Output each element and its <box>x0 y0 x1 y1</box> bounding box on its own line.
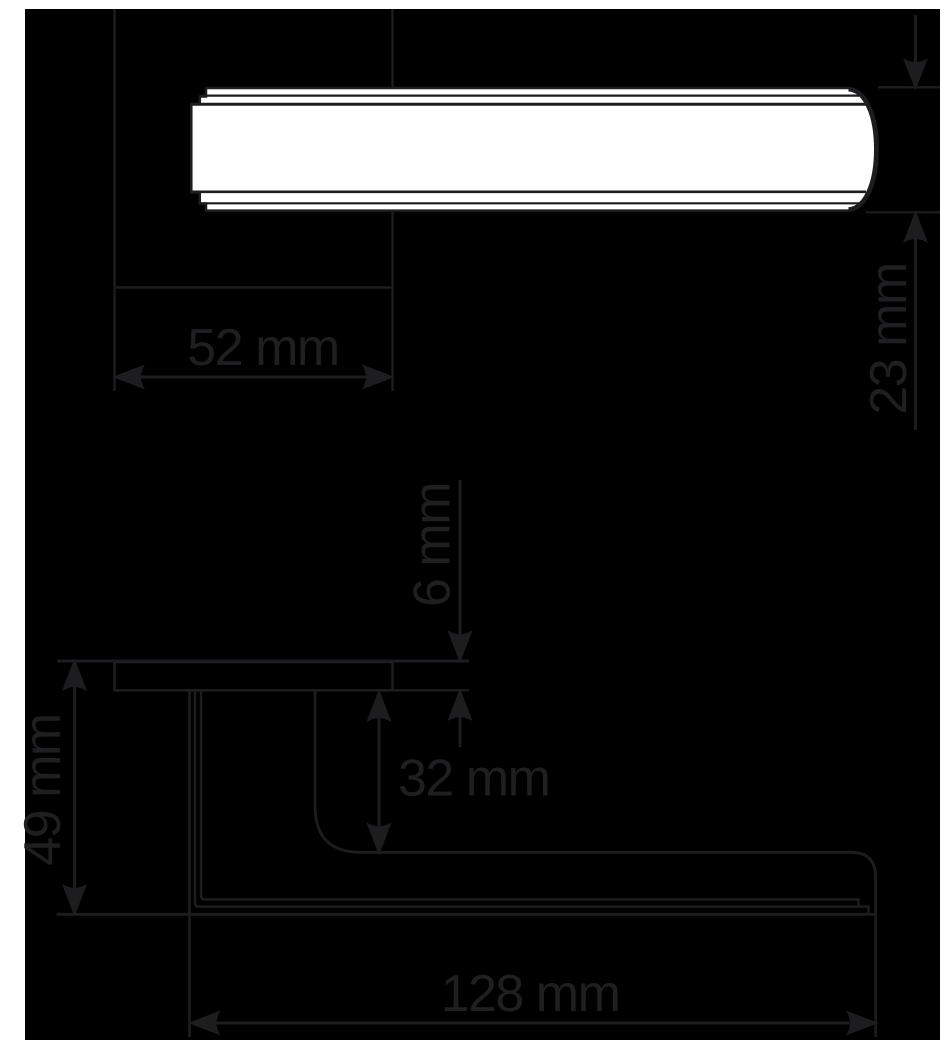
svg-text:6 mm: 6 mm <box>404 483 462 607</box>
svg-text:32 mm: 32 mm <box>398 750 549 808</box>
svg-text:128 mm: 128 mm <box>441 965 620 1023</box>
svg-text:52 mm: 52 mm <box>187 319 338 377</box>
svg-text:23 mm: 23 mm <box>860 263 918 414</box>
svg-text:49 mm: 49 mm <box>14 714 72 865</box>
